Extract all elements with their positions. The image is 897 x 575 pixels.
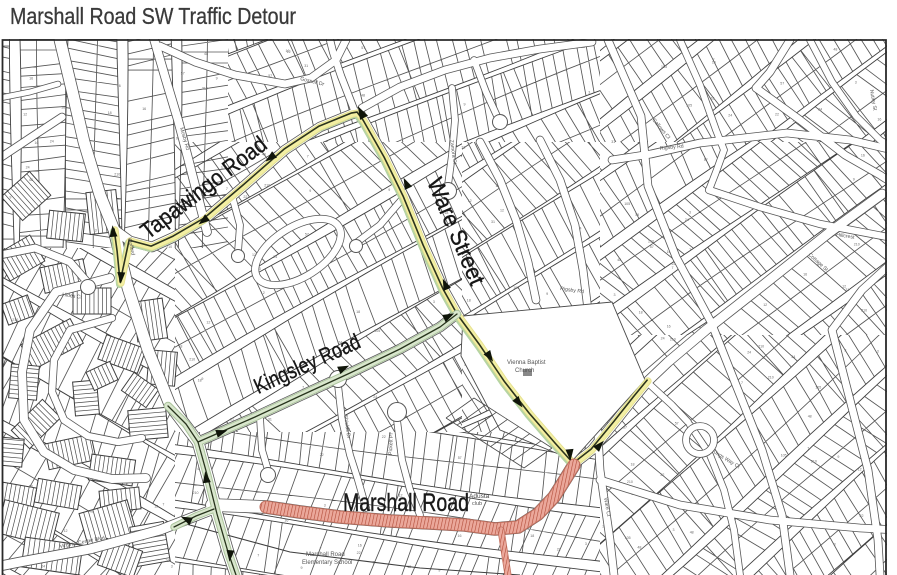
svg-text:57: 57: [305, 233, 309, 237]
svg-text:24: 24: [818, 107, 822, 111]
svg-text:57: 57: [181, 71, 185, 75]
svg-text:12: 12: [261, 291, 265, 295]
svg-text:57: 57: [458, 456, 462, 460]
svg-text:24: 24: [747, 351, 751, 355]
svg-text:Marshall Road: Marshall Road: [343, 489, 469, 517]
svg-text:57: 57: [675, 422, 679, 426]
svg-text:210: 210: [758, 345, 764, 349]
svg-text:18: 18: [61, 106, 65, 110]
svg-text:16: 16: [35, 141, 39, 145]
svg-text:9: 9: [309, 189, 311, 193]
svg-text:31: 31: [304, 64, 308, 68]
svg-text:24: 24: [41, 564, 45, 568]
svg-text:57: 57: [650, 245, 654, 249]
svg-text:24: 24: [50, 139, 54, 143]
svg-text:57: 57: [704, 158, 708, 162]
svg-text:210: 210: [114, 172, 120, 176]
svg-text:22: 22: [660, 473, 664, 477]
svg-text:22: 22: [357, 551, 361, 555]
svg-text:31: 31: [268, 418, 272, 422]
svg-text:12: 12: [763, 303, 767, 307]
svg-text:48: 48: [617, 258, 621, 262]
svg-text:22: 22: [166, 559, 170, 563]
svg-text:105: 105: [625, 536, 631, 540]
svg-text:Vienna Baptist: Vienna Baptist: [507, 360, 546, 366]
svg-text:12: 12: [64, 529, 68, 533]
svg-text:48: 48: [808, 414, 812, 418]
svg-text:7: 7: [807, 447, 809, 451]
svg-text:48: 48: [690, 531, 694, 535]
svg-text:18: 18: [467, 299, 471, 303]
svg-text:7: 7: [689, 248, 691, 252]
svg-text:22: 22: [860, 514, 864, 518]
svg-text:210: 210: [854, 242, 860, 246]
svg-text:22: 22: [775, 113, 779, 117]
svg-text:16: 16: [877, 118, 881, 122]
svg-text:22: 22: [557, 547, 561, 551]
svg-text:12: 12: [206, 320, 210, 324]
svg-text:48: 48: [29, 178, 33, 182]
svg-text:9: 9: [388, 188, 390, 192]
svg-text:Marshall Road SW Traffic Detou: Marshall Road SW Traffic Detour: [10, 3, 296, 29]
svg-text:31: 31: [845, 288, 849, 292]
svg-text:22: 22: [243, 195, 247, 199]
svg-text:22: 22: [382, 435, 386, 439]
svg-text:7: 7: [672, 266, 674, 270]
svg-text:3: 3: [844, 349, 846, 353]
svg-text:9: 9: [464, 103, 466, 107]
svg-text:57: 57: [361, 46, 365, 50]
svg-text:48: 48: [204, 52, 208, 56]
svg-text:18: 18: [178, 345, 182, 349]
svg-text:club: club: [472, 501, 482, 507]
svg-text:48: 48: [833, 48, 837, 52]
svg-text:9: 9: [837, 455, 839, 459]
svg-text:105: 105: [513, 286, 519, 290]
svg-text:16: 16: [667, 324, 671, 328]
svg-text:18: 18: [530, 534, 534, 538]
svg-text:9: 9: [301, 566, 303, 570]
svg-text:48: 48: [89, 510, 93, 514]
svg-text:31: 31: [611, 140, 615, 144]
svg-text:9: 9: [216, 77, 218, 81]
svg-text:18: 18: [356, 310, 360, 314]
svg-text:48: 48: [361, 93, 365, 97]
svg-text:7: 7: [226, 187, 228, 191]
svg-text:31: 31: [461, 145, 465, 149]
svg-text:3: 3: [324, 504, 326, 508]
svg-text:7: 7: [713, 58, 715, 62]
svg-text:16: 16: [458, 534, 462, 538]
svg-text:105: 105: [624, 202, 630, 206]
svg-text:Elementary School: Elementary School: [302, 560, 352, 566]
svg-text:3: 3: [673, 528, 675, 532]
svg-text:105: 105: [815, 385, 821, 389]
svg-text:18: 18: [29, 484, 33, 488]
svg-text:210: 210: [861, 309, 867, 313]
svg-text:24: 24: [728, 114, 732, 118]
svg-text:3: 3: [834, 543, 836, 547]
svg-text:210: 210: [811, 460, 817, 464]
svg-text:16: 16: [117, 84, 121, 88]
svg-text:210: 210: [627, 480, 633, 484]
svg-text:24: 24: [791, 355, 795, 359]
svg-text:3: 3: [877, 349, 879, 353]
svg-text:7: 7: [307, 154, 309, 158]
svg-text:210: 210: [670, 338, 676, 342]
svg-text:Pickett Pl: Pickett Pl: [388, 433, 395, 455]
svg-text:48: 48: [637, 545, 641, 549]
svg-text:9: 9: [201, 377, 203, 381]
svg-text:3: 3: [171, 565, 173, 569]
svg-text:16: 16: [358, 544, 362, 548]
svg-text:12: 12: [23, 113, 27, 117]
svg-text:16: 16: [29, 77, 33, 81]
svg-text:12: 12: [468, 199, 472, 203]
svg-text:16: 16: [861, 153, 865, 157]
svg-text:57: 57: [780, 81, 784, 85]
svg-text:18: 18: [639, 311, 643, 315]
svg-text:24: 24: [273, 255, 277, 259]
svg-text:Adusta: Adusta: [469, 493, 490, 500]
svg-text:24: 24: [685, 218, 689, 222]
svg-text:3: 3: [585, 542, 587, 546]
svg-text:18: 18: [631, 463, 635, 467]
svg-text:18: 18: [635, 213, 639, 217]
svg-text:16: 16: [803, 273, 807, 277]
svg-text:Marshall Road: Marshall Road: [306, 552, 345, 558]
svg-text:Church: Church: [515, 368, 534, 374]
svg-text:210: 210: [768, 375, 774, 379]
svg-text:24: 24: [26, 165, 30, 169]
svg-text:105: 105: [686, 104, 692, 108]
svg-text:210: 210: [189, 357, 195, 361]
svg-text:9: 9: [853, 178, 855, 182]
svg-text:210: 210: [648, 240, 654, 244]
svg-text:7: 7: [741, 381, 743, 385]
svg-text:3: 3: [588, 90, 590, 94]
svg-text:12: 12: [154, 505, 158, 509]
svg-text:12: 12: [287, 50, 291, 54]
svg-text:16: 16: [142, 107, 146, 111]
svg-text:12: 12: [858, 467, 862, 471]
svg-text:24: 24: [661, 336, 665, 340]
svg-text:210: 210: [264, 183, 270, 187]
svg-text:9: 9: [546, 292, 548, 296]
svg-text:210: 210: [202, 86, 208, 90]
svg-text:31: 31: [491, 220, 495, 224]
svg-text:57: 57: [623, 426, 627, 430]
svg-text:16: 16: [284, 518, 288, 522]
svg-text:18: 18: [710, 97, 714, 101]
svg-text:3: 3: [433, 300, 435, 304]
svg-text:3: 3: [855, 80, 857, 84]
svg-text:210: 210: [193, 491, 199, 495]
svg-text:24: 24: [373, 395, 377, 399]
svg-text:18: 18: [108, 111, 112, 115]
svg-text:7: 7: [320, 547, 322, 551]
svg-text:105: 105: [781, 453, 787, 457]
svg-text:105: 105: [661, 65, 667, 69]
svg-text:3: 3: [689, 211, 691, 215]
svg-text:12: 12: [500, 208, 504, 212]
svg-text:3: 3: [95, 229, 97, 233]
svg-text:3: 3: [614, 293, 616, 297]
svg-text:22: 22: [320, 453, 324, 457]
svg-text:210: 210: [12, 318, 18, 322]
svg-text:7: 7: [257, 554, 259, 558]
svg-text:7: 7: [162, 503, 164, 507]
svg-text:9: 9: [9, 195, 11, 199]
svg-text:105: 105: [374, 329, 380, 333]
